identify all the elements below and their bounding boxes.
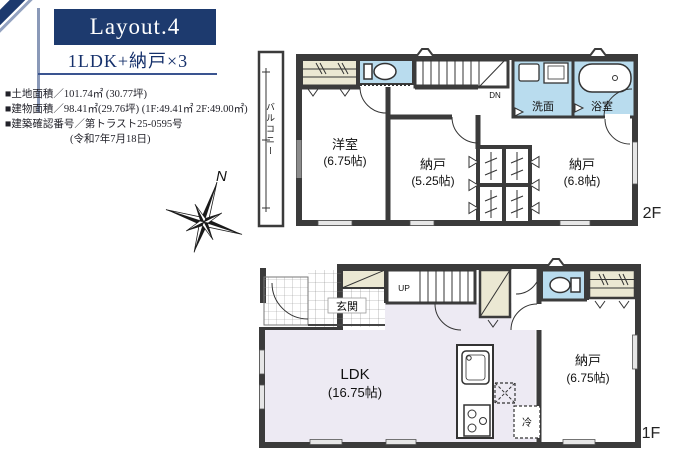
floor-1f-plan: 玄関 UP LDK (16.75帖) 納戸 (6.75帖) 冷 1F xyxy=(252,255,672,455)
toilet-icon xyxy=(550,278,570,293)
ldk-size: (16.75帖) xyxy=(328,385,382,400)
detail-confirmation-number: ■建築確認番号／第トラスト25-0595号 xyxy=(5,117,248,132)
storage2-size: (6.8帖) xyxy=(564,173,601,188)
western-room-name: 洋室 xyxy=(332,137,358,152)
closet-block-2f xyxy=(469,147,539,223)
bathroom-label: 浴室 xyxy=(591,99,613,113)
kitchen-counter xyxy=(457,345,493,438)
washroom-label: 洗面 xyxy=(532,100,554,113)
storage-size: (6.75帖) xyxy=(566,370,609,385)
detail-land-area: ■土地面積／101.74㎡ (30.77坪) xyxy=(5,87,248,102)
toilet-room-2f xyxy=(359,60,413,85)
vent-icon-1f xyxy=(547,259,565,267)
page-title: Layout.4 xyxy=(54,9,216,45)
toilet-icon xyxy=(364,64,372,79)
storage-name: 納戸 xyxy=(575,353,601,368)
bathtub-icon xyxy=(579,64,631,92)
refrigerator-label: 冷 xyxy=(522,416,532,429)
storage1-name: 納戸 xyxy=(420,157,446,172)
floor-label-1f: 1F xyxy=(642,425,661,442)
compass-star xyxy=(156,170,255,264)
western-room-size: (6.75帖) xyxy=(323,153,366,168)
balcony-slider xyxy=(297,140,302,178)
storage1-size: (5.25帖) xyxy=(411,173,454,188)
hallway-1f xyxy=(512,269,538,330)
washing-machine-icon xyxy=(519,64,539,81)
stairs-down-label: DN xyxy=(489,91,501,100)
toilet-room-1f xyxy=(542,270,586,300)
entrance-porch xyxy=(260,268,308,325)
plan-type-label: 1LDK+納戸×3 xyxy=(40,47,216,73)
detail-building-area: ■建物面積／98.41㎡(29.76坪) (1F:49.41㎡ 2F:49.00… xyxy=(5,102,248,117)
entrance-hall xyxy=(308,270,385,327)
corner-ribbon xyxy=(0,0,34,34)
ldk-name: LDK xyxy=(340,366,369,383)
stairs-2f xyxy=(415,60,508,87)
title-underline xyxy=(38,73,217,75)
storage2-name: 納戸 xyxy=(569,157,595,172)
detail-confirmation-date: (令和7年7月18日) xyxy=(5,132,248,147)
compass-icon: N xyxy=(156,168,256,264)
floor-2f-plan: DN xyxy=(252,42,672,237)
entrance-label: 玄関 xyxy=(336,299,358,313)
balcony-label: バルコニー xyxy=(264,102,277,157)
door-opening-2f xyxy=(605,114,630,122)
floor-label-2f: 2F xyxy=(643,205,662,222)
compass-north-label: N xyxy=(216,168,227,185)
stairs-up-label: UP xyxy=(398,283,410,293)
floorplan-page: { "header": { "layout_title": "Layout.4"… xyxy=(0,0,673,456)
property-details: ■土地面積／101.74㎡ (30.77坪) ■建物面積／98.41㎡(29.7… xyxy=(5,87,248,147)
